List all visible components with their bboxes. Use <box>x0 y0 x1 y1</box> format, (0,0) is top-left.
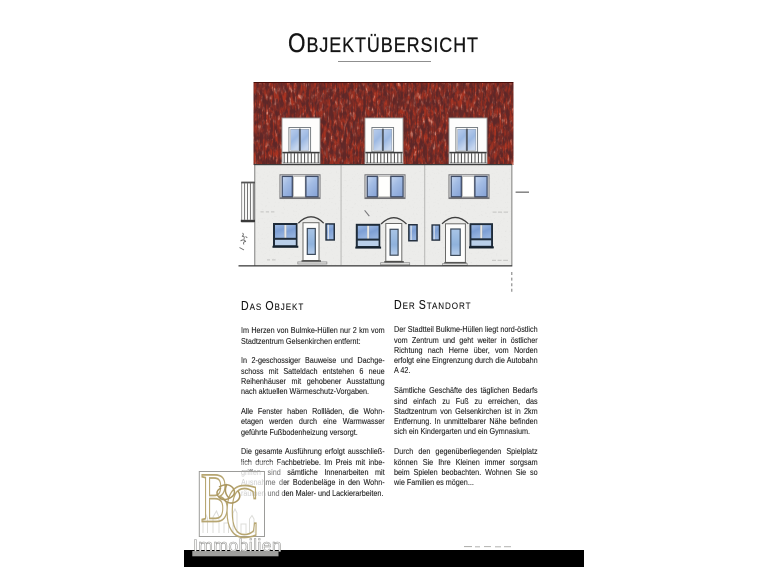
svg-text:Immobilien: Immobilien <box>193 536 282 556</box>
